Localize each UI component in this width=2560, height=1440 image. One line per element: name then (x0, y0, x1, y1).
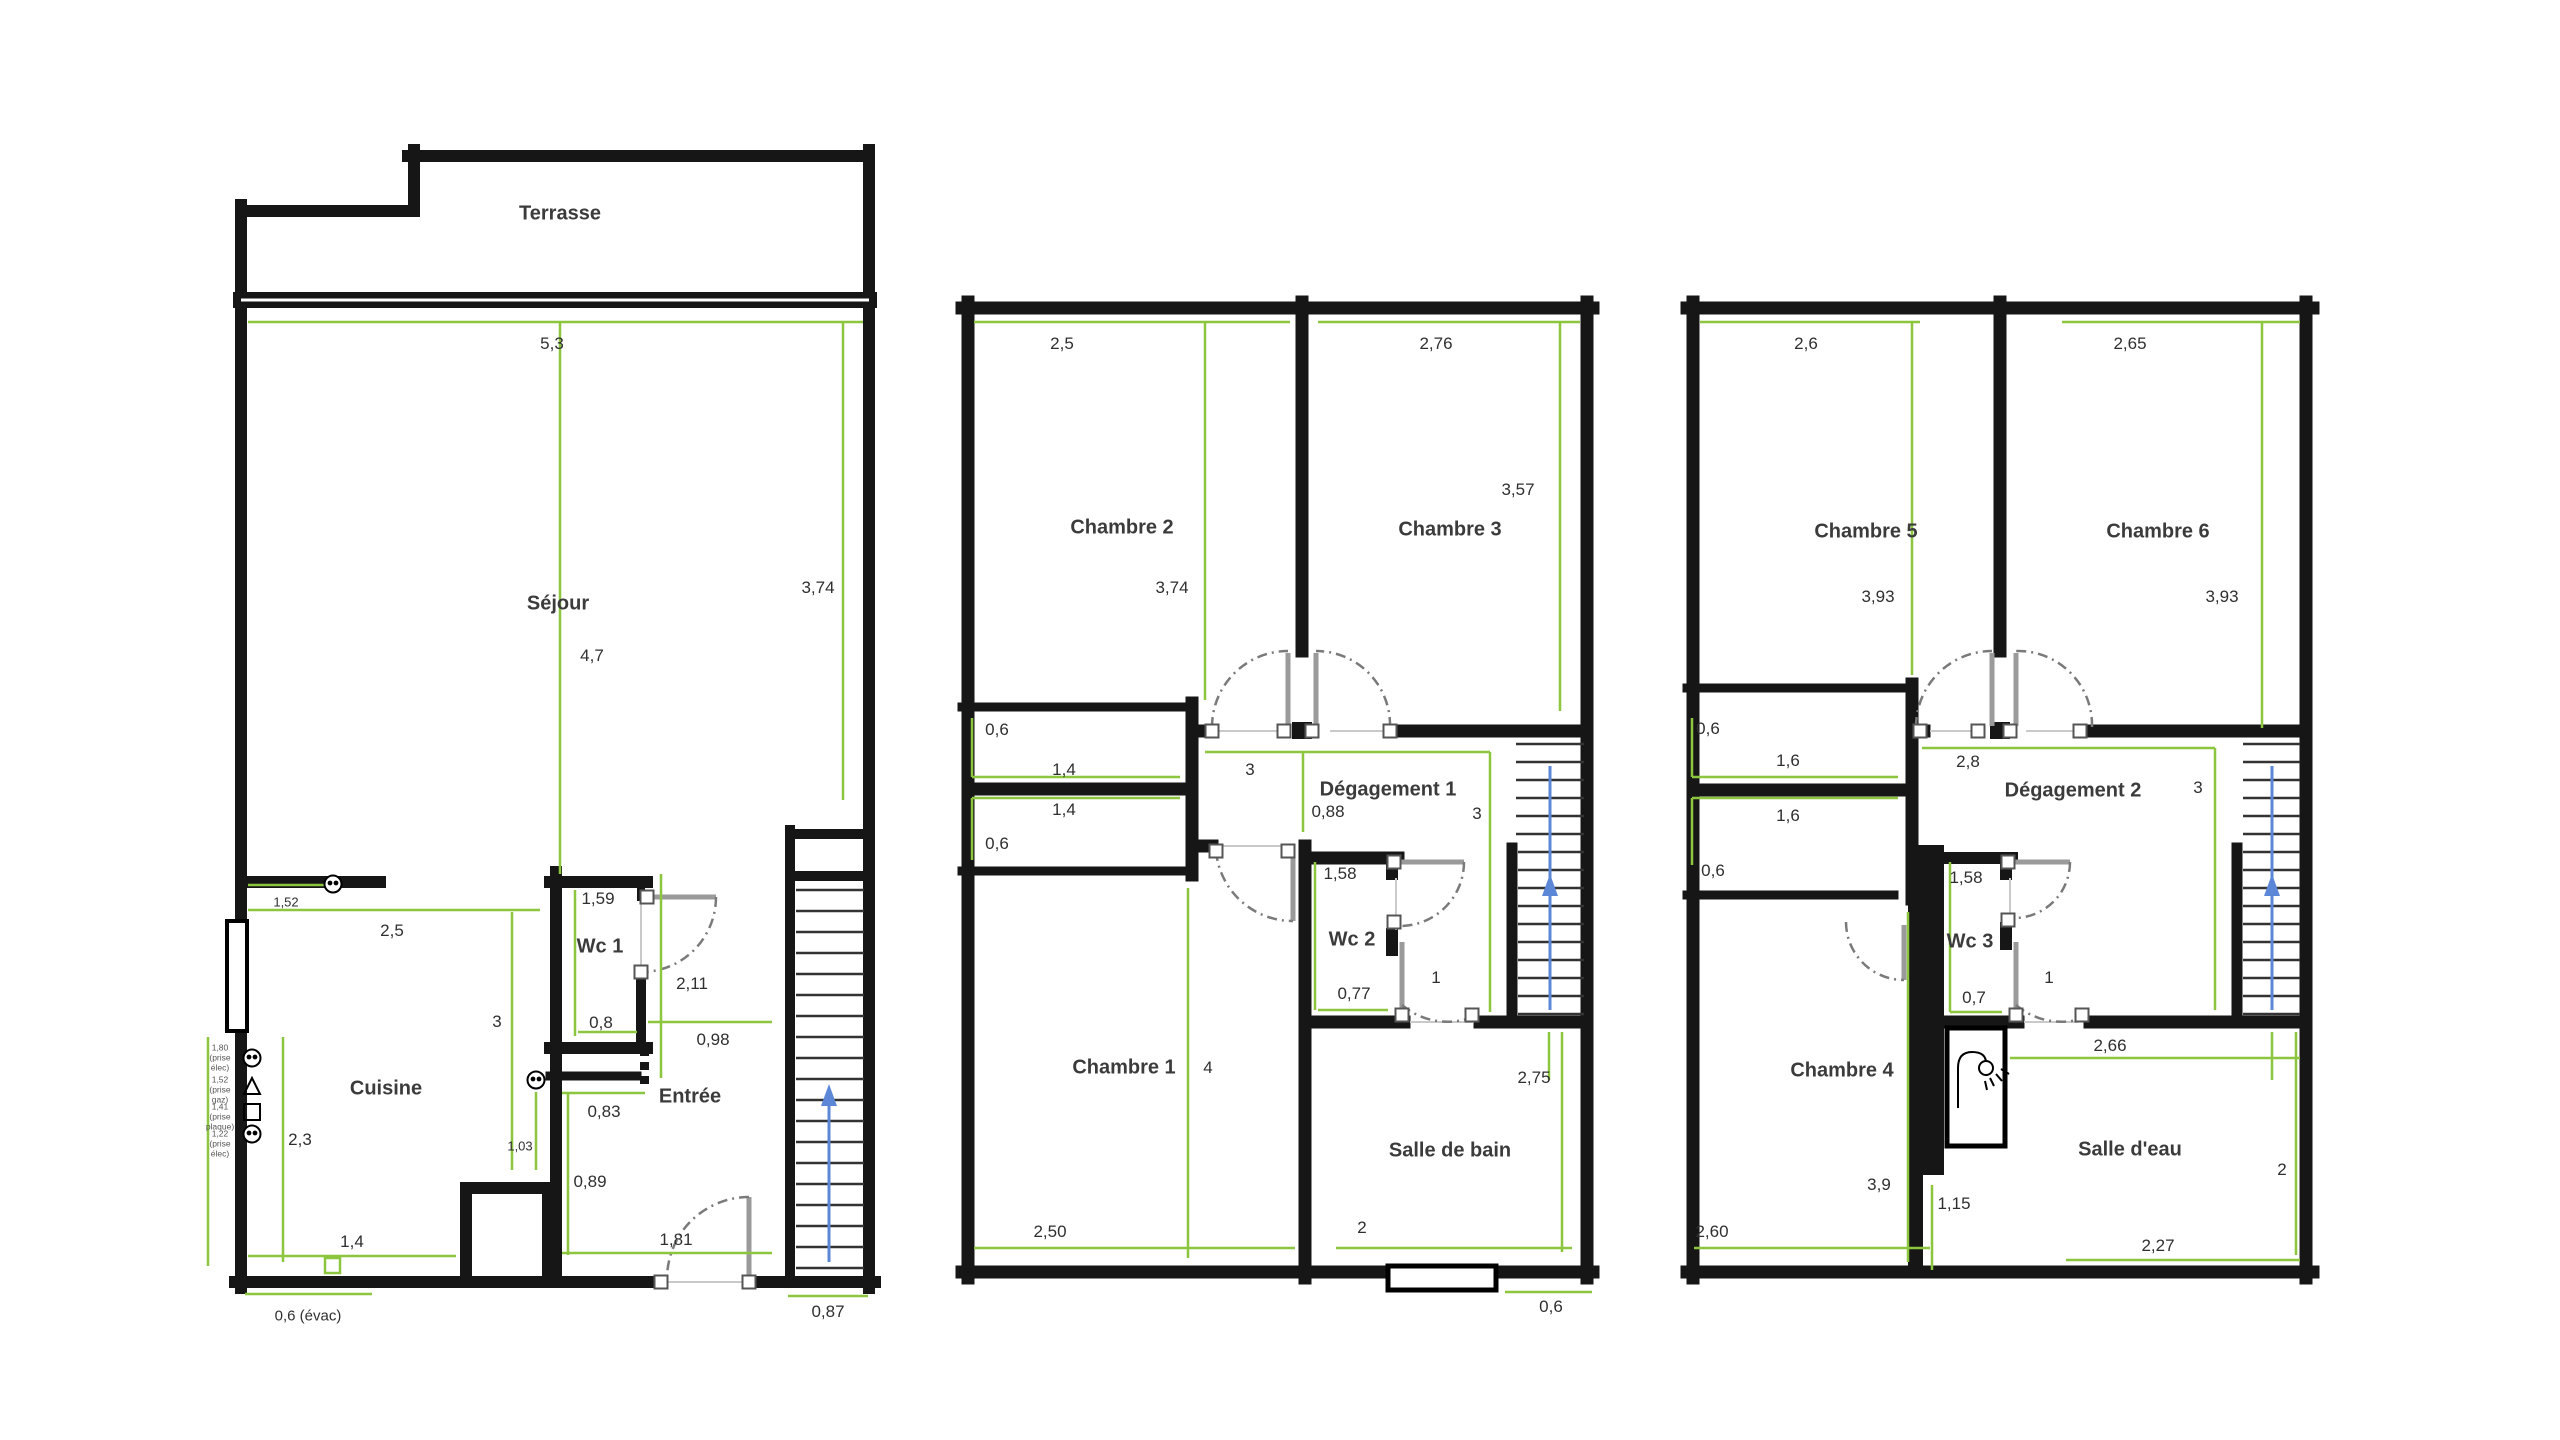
dim-deg1-width: 3 (1245, 760, 1254, 780)
dim-c3-width: 2,76 (1419, 334, 1452, 354)
room-label-degagement2: Dégagement 2 (2005, 780, 2142, 803)
dim-c1-height: 4 (1203, 1058, 1212, 1078)
floorplan-canvas: Terrasse 5,3 Séjour 4,7 3,74 1,52 2,5 3 … (0, 0, 2560, 1440)
dim-wc2-door: 1 (1431, 968, 1440, 988)
dim-duct: 1,15 (1937, 1194, 1970, 1214)
dim-closet-up-width-2: 1,6 (1776, 751, 1800, 771)
wc1-door-arc (641, 897, 716, 972)
dim-cuisine-height: 3 (492, 1012, 501, 1032)
room-label-salledebain: Salle de bain (1389, 1140, 1511, 1163)
dim-wc1-bottom: 0,8 (589, 1013, 613, 1033)
dim-wc2-width: 0,77 (1337, 984, 1370, 1004)
dim-c2-width: 2,5 (1050, 334, 1074, 354)
outlet-icon (244, 1050, 261, 1067)
dim-closet-low-width-1: 1,4 (1052, 800, 1076, 820)
dim-wc2-height: 1,58 (1323, 864, 1356, 884)
dim-ground-bottom-width: 1,4 (340, 1232, 364, 1252)
partition-dashes (640, 1048, 649, 1084)
dim-sde-width: 2,27 (2141, 1236, 2174, 1256)
ground-stairs-up-arrow (821, 1084, 837, 1262)
room-label-salledeau: Salle d'eau (2078, 1139, 2182, 1162)
dim-cuisine-left: 2,3 (288, 1130, 312, 1150)
dim-hall-width: 0,98 (696, 1030, 729, 1050)
room-label-chambre5: Chambre 5 (1814, 521, 1917, 544)
room-label-chambre6: Chambre 6 (2106, 521, 2209, 544)
dim-c5-width: 2,6 (1794, 334, 1818, 354)
dim-socket-height: 1,03 (507, 1139, 532, 1154)
room-label-chambre2: Chambre 2 (1070, 517, 1173, 540)
dim-sdb-window: 0,6 (1539, 1297, 1563, 1317)
dim-deg1-axis: 0,88 (1311, 802, 1344, 822)
bathroom-window (1388, 1266, 1496, 1290)
first-walls (962, 302, 1593, 1278)
ground-walls (235, 150, 875, 1288)
door-arcs (1212, 651, 1470, 1022)
outlet-note-3: 1,41 (prise plaque) (202, 1102, 238, 1133)
dim-c6-height: 3,93 (2205, 587, 2238, 607)
dim-evac: 0,6 (évac) (275, 1308, 342, 1325)
dim-c6-width: 2,65 (2113, 334, 2146, 354)
door-arcs (1846, 651, 2092, 1022)
dim-c2-height: 3,74 (1155, 578, 1188, 598)
dim-c4-width: 2,60 (1695, 1222, 1728, 1242)
duct-wall (1908, 845, 1944, 1175)
room-label-cuisine: Cuisine (350, 1078, 422, 1101)
room-label-terrasse: Terrasse (519, 203, 601, 226)
room-label-sejour: Séjour (527, 593, 589, 616)
dim-c4-height: 3,9 (1867, 1175, 1891, 1195)
first-doors (1206, 651, 1479, 1022)
dim-wc3-door: 1 (2044, 968, 2053, 988)
dim-shower-width: 2,66 (2093, 1036, 2126, 1056)
outlet-icon (244, 1126, 261, 1143)
shower (1947, 1028, 2009, 1146)
room-label-wc2: Wc 2 (1329, 929, 1376, 952)
dim-wc3-height: 1,58 (1949, 868, 1982, 888)
room-label-wc3: Wc 3 (1947, 931, 1994, 954)
dim-deg2-height: 3 (2193, 778, 2202, 798)
outlet-note-4: 1,22 (prise élec) (202, 1129, 238, 1160)
dim-ground-top: 5,3 (540, 334, 564, 354)
dim-entree-top: 0,83 (587, 1102, 620, 1122)
dim-stairs-width: 0,87 (811, 1302, 844, 1322)
dim-deg1-height: 3 (1472, 804, 1481, 824)
dim-counter: 1,52 (273, 895, 298, 910)
second-floor-plan (1687, 302, 2313, 1278)
dim-sde-height: 2 (2277, 1160, 2286, 1180)
dim-closet-up-depth-2: 0,6 (1696, 719, 1720, 739)
dim-ground-right-height: 3,74 (801, 578, 834, 598)
outlet-icon (528, 1072, 545, 1089)
dim-sejour-height: 4,7 (580, 646, 604, 666)
ground-floor-plan (208, 150, 875, 1296)
room-label-chambre3: Chambre 3 (1398, 519, 1501, 542)
room-label-chambre1: Chambre 1 (1072, 1057, 1175, 1080)
room-label-entree: Entrée (659, 1086, 721, 1109)
dim-wc1-door: 2,11 (676, 974, 708, 994)
dim-wc3-width: 0,7 (1962, 988, 1986, 1008)
sejour-window (227, 921, 247, 1031)
dim-closet-low-width-2: 1,6 (1776, 806, 1800, 826)
dim-cuisine-width: 2,5 (380, 921, 404, 941)
outlet-note-2: 1,52 (prise gaz) (202, 1075, 238, 1106)
dim-sdb-width: 2 (1357, 1218, 1366, 1238)
dim-closet-low-depth-2: 0,6 (1701, 861, 1725, 881)
dim-wc1-width: 1,59 (581, 889, 614, 909)
dim-c5-height: 3,93 (1861, 587, 1894, 607)
dim-deg2-width: 2,8 (1956, 752, 1980, 772)
dim-entry-door: 1,81 (659, 1230, 692, 1250)
second-doors (1846, 651, 2092, 1022)
room-label-degagement1: Dégagement 1 (1320, 779, 1457, 802)
dim-closet-up-depth-1: 0,6 (985, 720, 1009, 740)
outlet-icon (325, 876, 342, 893)
ground-icons (244, 876, 545, 1143)
dim-c3-height: 3,57 (1501, 480, 1534, 500)
dim-closet-up-width-1: 1,4 (1052, 760, 1076, 780)
outlet-note-1: 1,80 (prise élec) (202, 1043, 238, 1074)
room-label-wc1: Wc 1 (577, 936, 624, 959)
floorplan-drawing (0, 0, 2560, 1440)
room-label-chambre4: Chambre 4 (1790, 1060, 1893, 1083)
dim-c1-width: 2,50 (1033, 1222, 1066, 1242)
dim-entree-side: 0,89 (573, 1172, 606, 1192)
dim-closet-low-depth-1: 0,6 (985, 834, 1009, 854)
dim-sdb-height: 2,75 (1517, 1068, 1550, 1088)
